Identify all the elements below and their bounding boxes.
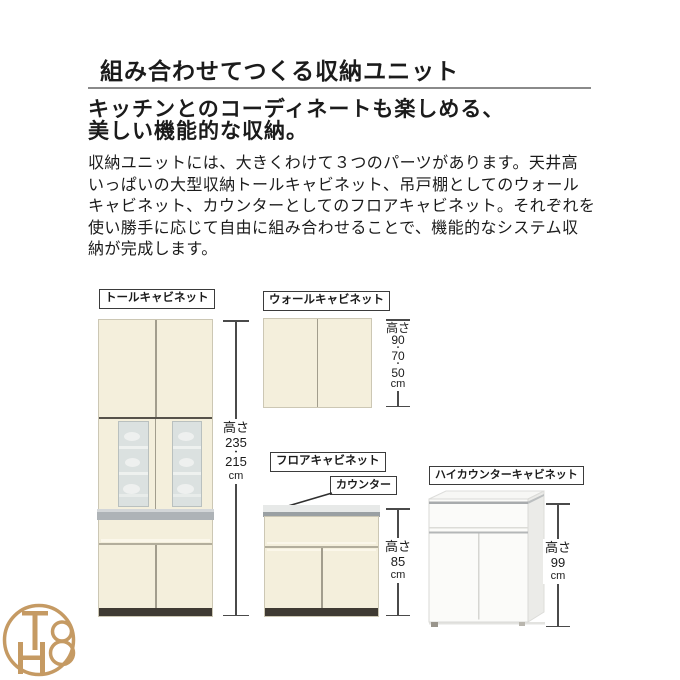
wall-cabinet-height-dimension: 高さ 90 ・ 70 ・ 50 cm [386,319,410,407]
tall-lower-doors [99,545,212,609]
high-counter-cabinet-label: ハイカウンターキャビネット [429,466,584,485]
intro-line: 納が完成します。 [88,239,595,261]
intro-line: 収納ユニットには、大きくわけて３つのパーツがあります。天井高 [88,153,595,175]
intro-line: いっぱいの大型収納トールキャビネット、吊戸棚としてのウォール [88,175,595,197]
floor-base [265,608,378,616]
high-counter-height-dimension: 高さ 99 cm [546,503,570,627]
floor-cabinet-body [265,517,378,616]
floor-cabinet-diagram [265,505,378,616]
page-title: 組み合わせてつくる収納ユニット [100,52,459,86]
subtitle-line: 美しい機能的な収納。 [88,121,504,143]
floor-counter-top [263,505,380,517]
wall-cabinet-diagram [264,319,371,407]
glass-panel [172,421,202,507]
tall-cabinet-label: トールキャビネット [99,289,215,309]
counter-callout-label: カウンター [330,476,397,495]
tall-counter-strip [97,509,214,520]
high-counter-cabinet-photo [425,488,560,633]
page-subtitle: キッチンとのコーディネートも楽しめる、 美しい機能的な収納。 [88,99,504,143]
intro-line: 使い勝手に応じて自由に組み合わせることで、機能的なシステム収 [88,218,595,240]
tall-cabinet-diagram [99,320,212,616]
wall-cabinet-label: ウォールキャビネット [263,291,390,311]
floor-doors [265,548,378,609]
intro-paragraph: 収納ユニットには、大きくわけて３つのパーツがあります。天井高 いっぱいの大型収納… [88,153,595,261]
glass-panel [118,421,149,507]
tall-drawer-band [99,520,212,543]
tall-upper-doors [99,320,212,417]
floor-cabinet-height-dimension: 高さ 85 cm [386,508,410,616]
subtitle-line: キッチンとのコーディネートも楽しめる、 [88,99,504,121]
tall-base [99,608,212,616]
catalog-page: 組み合わせてつくる収納ユニット キッチンとのコーディネートも楽しめる、 美しい機… [0,0,680,680]
floor-cabinet-label: フロアキャビネット [270,452,386,472]
watermark-monogram-logo [2,600,80,680]
title-underline [88,87,591,89]
tall-cabinet-height-dimension: 高さ 235 ・ 215 cm [223,320,249,616]
tall-glass-doors [99,419,212,509]
floor-drawer-band [265,517,378,546]
intro-line: キャビネット、カウンターとしてのフロアキャビネット。それぞれを [88,196,595,218]
